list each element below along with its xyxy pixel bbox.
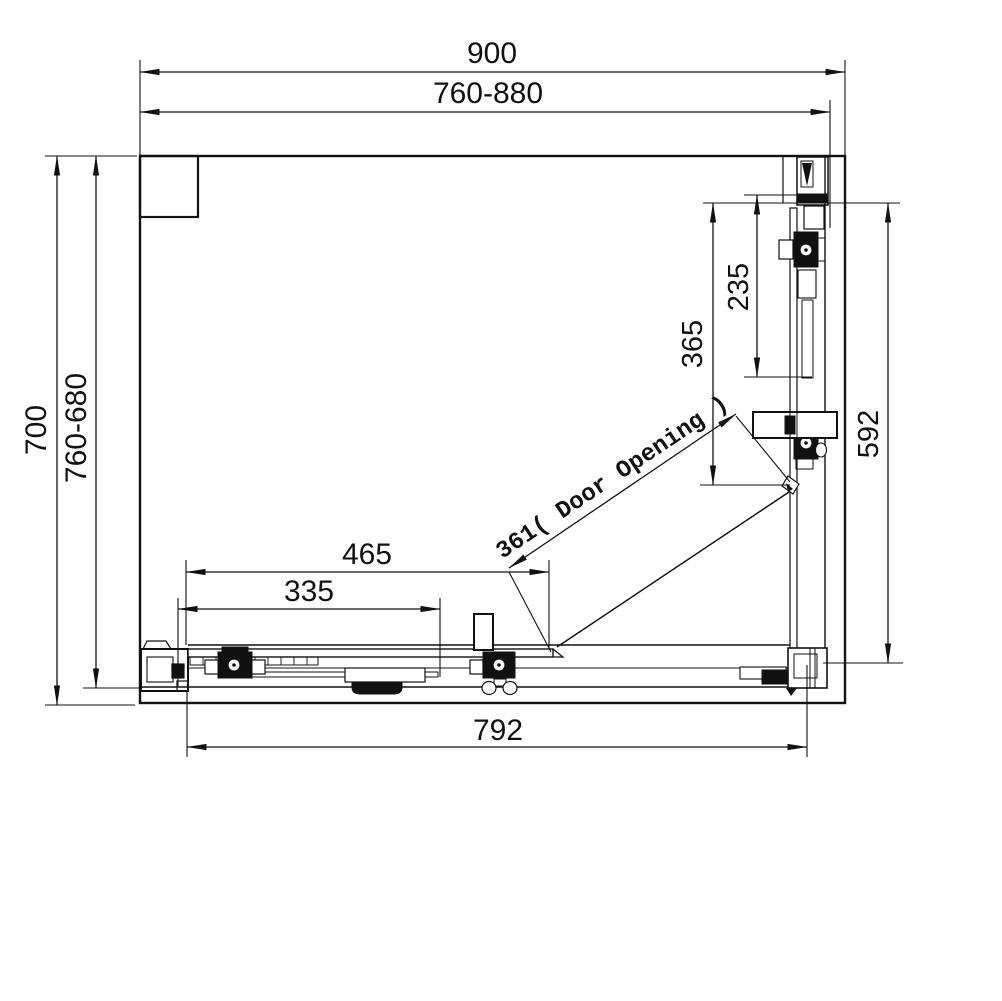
shower-enclosure-plan: 900 760-880 700 760-680 235 365 592 465 … — [0, 0, 1002, 1001]
label-right-fixed-panel: 235 — [723, 263, 755, 311]
roller-top-right — [779, 232, 825, 267]
dimension-lines — [57, 72, 888, 747]
label-left-outer: 700 — [20, 405, 53, 455]
label-top-adjustable: 760-880 — [433, 77, 543, 110]
wall-profile-bottom-left — [141, 641, 188, 691]
label-left-adjustable: 760-680 — [60, 373, 93, 483]
door-handle — [474, 614, 493, 650]
label-right-mid-span: 365 — [677, 320, 709, 368]
label-bottom-door-panel: 465 — [342, 538, 392, 571]
label-bottom-overall: 792 — [473, 714, 523, 747]
label-door-opening: 361( Door Opening ) — [492, 391, 734, 566]
wall-profile-top-left — [140, 156, 198, 217]
panel-crossbar — [753, 412, 837, 438]
fixed-panel-assembly — [740, 157, 837, 696]
bracket-top-right — [797, 157, 828, 229]
label-top-outer: 900 — [467, 37, 517, 70]
corner-bracket-bottom-right — [740, 648, 827, 696]
roller-center — [470, 652, 517, 695]
label-right-overall: 592 — [853, 410, 885, 458]
panel-end-cap — [553, 649, 563, 657]
guide-block — [345, 668, 425, 694]
sliding-door-assembly — [188, 614, 563, 695]
dim-door-opening — [509, 414, 736, 568]
technical-drawing-canvas: 900 760-880 700 760-680 235 365 592 465 … — [0, 0, 1002, 1001]
label-bottom-inner-panel: 335 — [284, 575, 334, 608]
